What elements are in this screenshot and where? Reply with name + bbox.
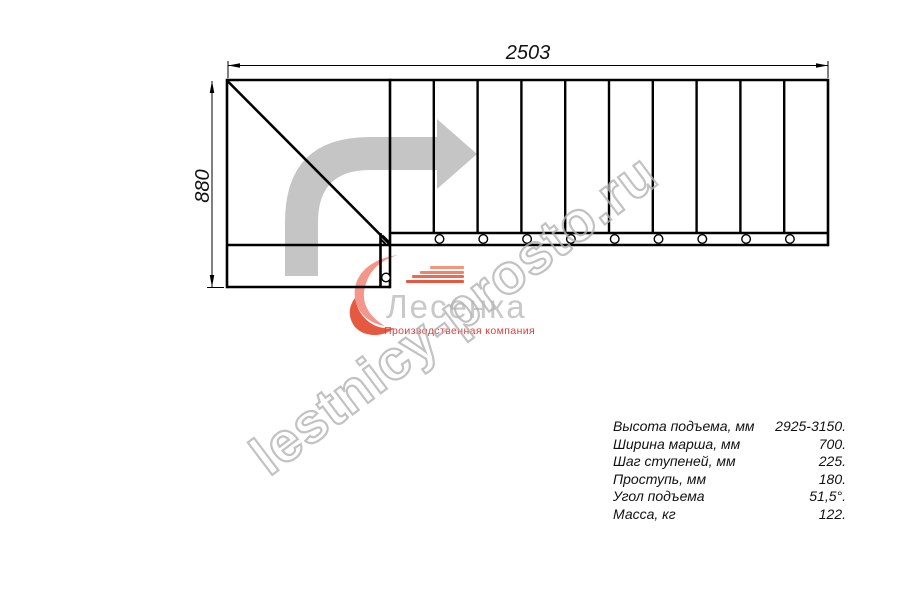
spec-value: 122. xyxy=(819,506,846,524)
spec-row-angle: Угол подъема 51,5°. xyxy=(613,488,846,506)
dim-arrow-left-icon xyxy=(228,63,240,68)
spec-value: 700. xyxy=(819,436,846,454)
spec-label: Ширина марша, мм xyxy=(613,436,740,454)
spec-value: 51,5°. xyxy=(809,488,846,506)
spec-value: 225. xyxy=(819,453,846,471)
spec-label: Шаг ступеней, мм xyxy=(613,453,736,471)
spec-row-mass: Масса, кг 122. xyxy=(613,506,846,524)
dim-arrow-up-icon xyxy=(210,81,215,93)
spec-value: 2925-3150. xyxy=(775,418,846,436)
dimension-label-width: 2503 xyxy=(505,42,551,64)
spec-label: Проступь, мм xyxy=(613,471,706,489)
tread-lines xyxy=(434,80,784,233)
spec-table: Высота подъема, мм 2925-3150. Ширина мар… xyxy=(613,418,846,523)
dim-arrow-down-icon xyxy=(210,275,215,287)
spec-value: 180. xyxy=(819,471,846,489)
dim-arrow-right-icon xyxy=(816,63,828,68)
dimension-label-height: 880 xyxy=(192,169,214,202)
spec-label: Угол подъема xyxy=(613,488,705,506)
spec-label: Масса, кг xyxy=(613,506,676,524)
spec-row-tread: Проступь, мм 180. xyxy=(613,471,846,489)
spec-row-march-width: Ширина марша, мм 700. xyxy=(613,436,846,454)
spec-row-step-pitch: Шаг ступеней, мм 225. xyxy=(613,453,846,471)
fastener-circles xyxy=(382,235,795,282)
spec-row-height: Высота подъема, мм 2925-3150. xyxy=(613,418,846,436)
spec-label: Высота подъема, мм xyxy=(613,418,755,436)
